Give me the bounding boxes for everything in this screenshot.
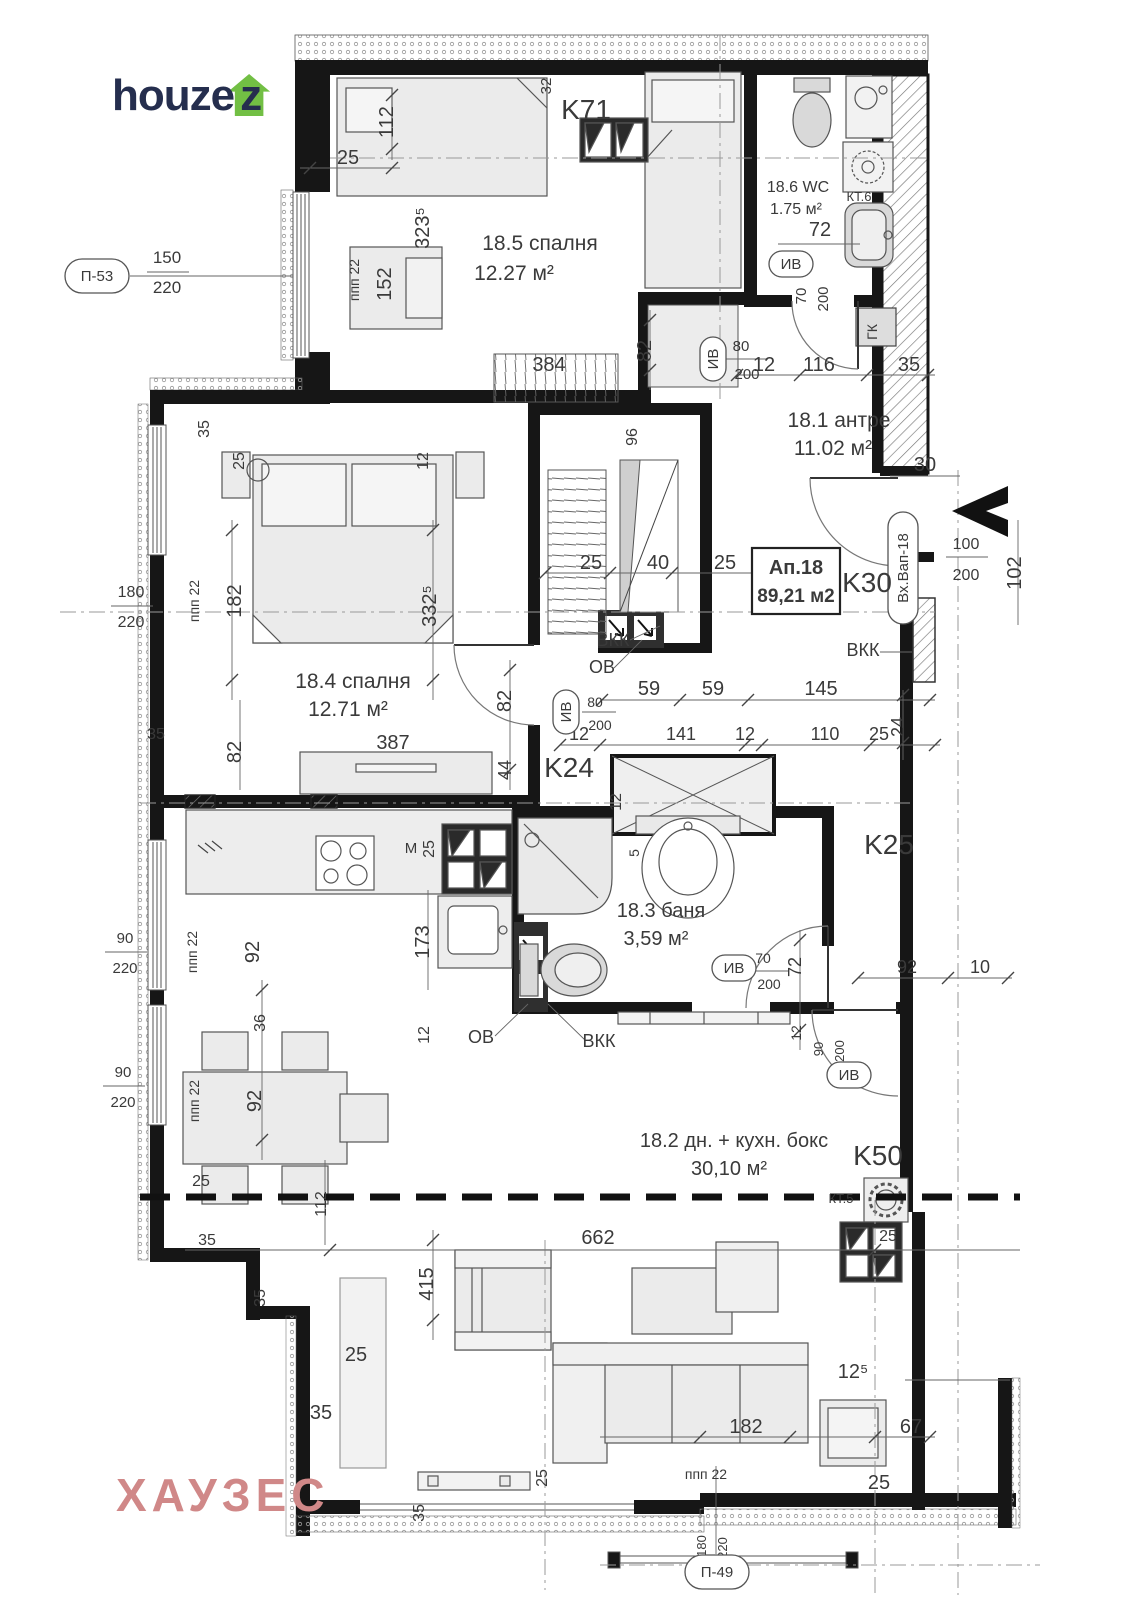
apartment-info-box: Ап.18 89,21 м2 (752, 548, 840, 614)
window-bottom-left (360, 1504, 634, 1510)
dim-label: 110 (811, 724, 840, 744)
towel-radiator (618, 1012, 790, 1024)
dim-label: 32 (538, 78, 555, 95)
room-area: 3,59 м² (624, 928, 689, 950)
dim-label: 72 (809, 219, 831, 241)
dim-label: ппп 22 (685, 1466, 727, 1482)
washing-machine (843, 142, 893, 192)
dim-label: 220 (112, 960, 137, 977)
dim-label: 173 (412, 925, 434, 958)
dim-label: 35 (411, 1504, 428, 1522)
dim-label: ппп 22 (184, 931, 200, 973)
column-label: K50 (853, 1140, 903, 1171)
dim-label: 82 (224, 741, 246, 763)
column-label: K30 (842, 567, 892, 598)
dresser-2 (300, 752, 492, 794)
annotation-label: М (405, 840, 418, 857)
dim-label: 200 (588, 717, 612, 733)
annotation-label: ОВ (468, 1027, 494, 1047)
annotation-label: ОВ (589, 657, 615, 677)
dim-label: 415 (416, 1267, 438, 1300)
dim-label: 180 (118, 584, 145, 601)
dim-label: 82 (634, 340, 656, 362)
dim-label: 182 (224, 584, 246, 617)
tag-oval: П-49 (685, 1555, 749, 1589)
dim-label: 12 (788, 1025, 804, 1041)
dim-label: 80 (733, 338, 750, 355)
sink-wc (846, 76, 892, 138)
dim-label: 12 (735, 724, 755, 744)
dim-label: 40 (647, 552, 669, 574)
dim-label: 200 (953, 567, 980, 584)
dim-label: 44 (495, 760, 515, 780)
dim-label: 200 (832, 1040, 847, 1062)
dim-label: 92 (244, 1090, 266, 1112)
dim-label: 662 (581, 1227, 614, 1249)
annotation-label: ВКК (583, 1031, 616, 1051)
logo-text: houze (112, 74, 234, 118)
dim-label: 35 (147, 726, 165, 743)
dim-label: 112 (313, 1191, 330, 1217)
side-table (820, 1400, 886, 1466)
dim-label: 150 (153, 248, 181, 267)
dim-label: 384 (532, 354, 565, 376)
tv-board (418, 1472, 530, 1490)
dim-label: 12 (416, 1026, 433, 1044)
dim-label: 72 (785, 957, 805, 977)
dim-label: ппп 22 (346, 259, 362, 301)
dim-label: 25 (345, 1344, 367, 1366)
dim-label: 25 (868, 1472, 890, 1494)
basin-kt6 (845, 203, 893, 267)
room-area: 12.27 м² (474, 262, 554, 285)
logo-text-z: z (240, 74, 261, 118)
tag-label: ИВ (839, 1067, 860, 1084)
dim-label: 25 (534, 1469, 551, 1487)
tag-oval: ИВ (769, 251, 813, 277)
dim-label: 67 (900, 1416, 922, 1438)
room-name: 18.2 дн. + кухн. бокс (640, 1130, 828, 1152)
window-left-2 (148, 840, 166, 990)
dim-label: 145 (804, 678, 837, 700)
dim-label: 35 (310, 1402, 332, 1424)
dim-label: 152 (374, 267, 396, 300)
dim-label: 25 (714, 552, 736, 574)
dim-label: 90 (811, 1042, 826, 1056)
dim-label: 70 (793, 288, 810, 305)
room-area: 12.71 м² (308, 698, 388, 721)
dim-label: 12 (608, 793, 625, 811)
dim-label: 332⁵ (419, 585, 441, 627)
annotation-label: ВКК (597, 630, 630, 650)
window-p53 (293, 192, 309, 358)
bed-single-2 (645, 72, 741, 288)
dim-label: 92 (242, 941, 264, 963)
tag-label: ИВ (781, 256, 802, 273)
annotation-label: КТ.5 (829, 1191, 854, 1206)
dim-label: 141 (666, 724, 696, 744)
toilet-bath (520, 944, 607, 996)
dim-label: 220 (118, 614, 145, 631)
tag-oval: ИВ (700, 337, 726, 381)
room-area: 11.02 м² (794, 437, 872, 460)
tag-oval: ИВ (712, 955, 756, 981)
dim-label: 323⁵ (412, 207, 434, 249)
stove (316, 836, 374, 890)
tag-oval: ИВ (553, 690, 579, 734)
bed-single-1 (337, 78, 547, 196)
room-area: 1.75 м² (770, 201, 823, 218)
dim-label: 96 (624, 428, 641, 446)
dim-label: 25 (879, 1228, 897, 1245)
dresser-1 (350, 247, 442, 329)
dim-label: 35 (252, 1289, 269, 1307)
column-label: K25 (864, 829, 914, 860)
dim-label: 82 (494, 690, 516, 712)
apartment-tag: Ап.18 (769, 557, 823, 579)
tag-label: Вх.Вап-18 (895, 533, 912, 603)
dim-label: 24 (888, 717, 908, 737)
dim-label: 12⁵ (838, 1361, 869, 1383)
shower-cabin (518, 818, 612, 914)
toilet-wc (793, 78, 831, 147)
dim-label: 92 (897, 957, 917, 977)
dim-label: 25 (337, 147, 359, 169)
tag-label: ИВ (724, 960, 745, 977)
armchair (455, 1250, 551, 1350)
kitchen-sink-unit (438, 896, 512, 968)
annotation-label: ВКК (847, 640, 880, 660)
dim-label: 116 (803, 354, 835, 376)
window-left-1 (148, 425, 166, 555)
column-label: K24 (544, 752, 594, 783)
tag-oval: Вх.Вап-18 (888, 512, 918, 624)
annotation-label: КТ.6 (847, 189, 872, 204)
dim-label: 5 (626, 849, 642, 857)
apartment-area: 89,21 м2 (757, 586, 834, 607)
room-name: 18.4 спалня (295, 670, 410, 693)
room-area: 30,10 м² (691, 1158, 767, 1180)
apartment-floorplan: Ап.18 89,21 м2 2511232323⁵152ппп 2215022… (0, 0, 1131, 1600)
sofa (553, 1343, 808, 1463)
room-name: 18.1 антре (788, 409, 891, 432)
dim-label: 200 (757, 976, 781, 992)
dim-label: 80 (587, 694, 603, 710)
dim-label: 387 (376, 732, 409, 754)
tag-oval: П-53 (65, 259, 129, 293)
dim-label: 220 (110, 1094, 135, 1111)
tag-label: П-49 (701, 1564, 733, 1581)
dim-label: 102 (1004, 556, 1026, 589)
entrance-arrow-icon (952, 486, 1008, 537)
dim-label: 35 (898, 354, 920, 376)
dim-label: 25 (580, 552, 602, 574)
dim-label: 35 (196, 420, 213, 438)
coffee-table (632, 1242, 778, 1334)
dim-label: 25 (421, 840, 438, 858)
dim-label: 10 (970, 957, 990, 977)
dim-label: 59 (638, 678, 660, 700)
dim-label: ппп 22 (186, 1080, 202, 1122)
window-left-3 (148, 1005, 166, 1125)
dim-label: 112 (376, 106, 398, 138)
window-kitchen-dark (442, 824, 512, 894)
annotation-label: ГК (864, 323, 880, 340)
dim-label: 30 (914, 454, 936, 476)
dim-label: 25 (192, 1173, 210, 1190)
dim-label: 12 (415, 452, 432, 470)
tag-label: ИВ (558, 702, 575, 723)
dim-label: 70 (755, 950, 771, 966)
dim-label: 36 (252, 1014, 269, 1032)
nightstand-right (456, 452, 484, 498)
dim-label: 35 (198, 1232, 216, 1249)
dining-table (183, 1072, 347, 1164)
houzez-logo: houze z (112, 74, 261, 118)
dim-label: 180 (694, 1535, 709, 1557)
dim-label: 182 (729, 1416, 762, 1438)
dim-label: 90 (115, 1064, 132, 1081)
tag-oval: ИВ (827, 1062, 871, 1088)
dim-label: 200 (815, 286, 832, 311)
dim-label: 12 (753, 354, 775, 376)
dim-label: 25 (869, 724, 889, 744)
dim-label: ппп 22 (186, 580, 202, 622)
dim-label: 100 (953, 536, 980, 553)
dim-label: 59 (702, 678, 724, 700)
watermark-text: ХАУЗЕС (116, 1468, 329, 1522)
dim-label: 90 (117, 930, 134, 947)
room-name: 18.3 баня (617, 900, 705, 922)
room-name: 18.6 WC (767, 179, 829, 196)
room-name: 18.5 спалня (482, 232, 597, 255)
column-label: K71 (561, 94, 611, 125)
tag-label: ИВ (705, 349, 722, 370)
tag-label: П-53 (81, 268, 113, 285)
dim-label: 220 (153, 278, 181, 297)
dim-label: 25 (231, 452, 248, 470)
curtain-strip (340, 1278, 386, 1468)
floorplan-page: houze z ХАУЗЕС (0, 0, 1131, 1600)
